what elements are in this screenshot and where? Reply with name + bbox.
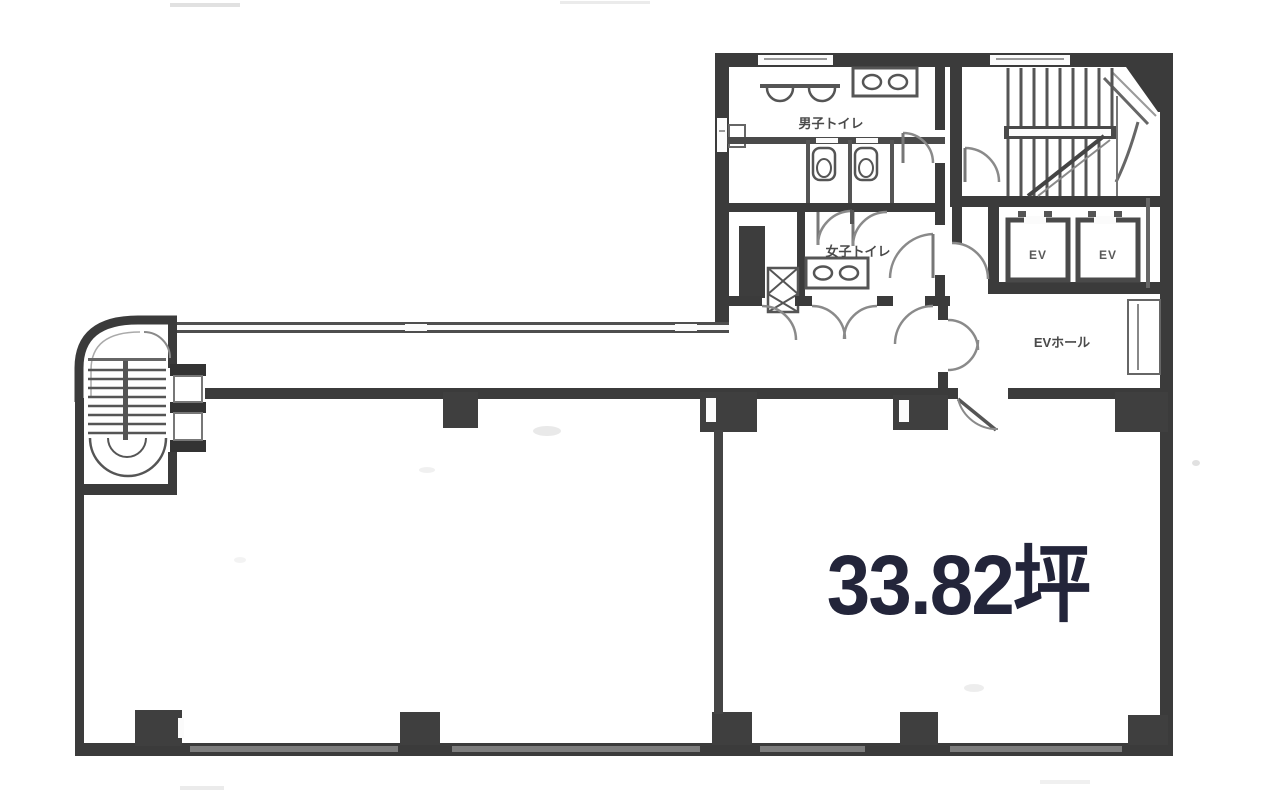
womens-toilet-label: 女子トイレ xyxy=(825,244,890,259)
elevator-hall-label: EVホール xyxy=(1034,335,1090,350)
elevator-1-label: EV xyxy=(1029,248,1047,262)
floor-plan-page: 男子トイレ 女子トイレ EV EV EVホール 33.82坪 xyxy=(0,0,1280,811)
floor-area-label: 33.82坪 xyxy=(827,539,1090,632)
left-stair-tower xyxy=(75,320,206,495)
floor-plan-drawing: 男子トイレ 女子トイレ EV EV EVホール 33.82坪 xyxy=(0,0,1280,811)
elevator-2-label: EV xyxy=(1099,248,1117,262)
mens-toilet-label: 男子トイレ xyxy=(798,116,863,131)
core-inner-wall xyxy=(715,296,950,344)
building-structure xyxy=(75,1,1200,790)
elevator-shafts xyxy=(952,198,1168,294)
corridor xyxy=(172,322,1160,399)
